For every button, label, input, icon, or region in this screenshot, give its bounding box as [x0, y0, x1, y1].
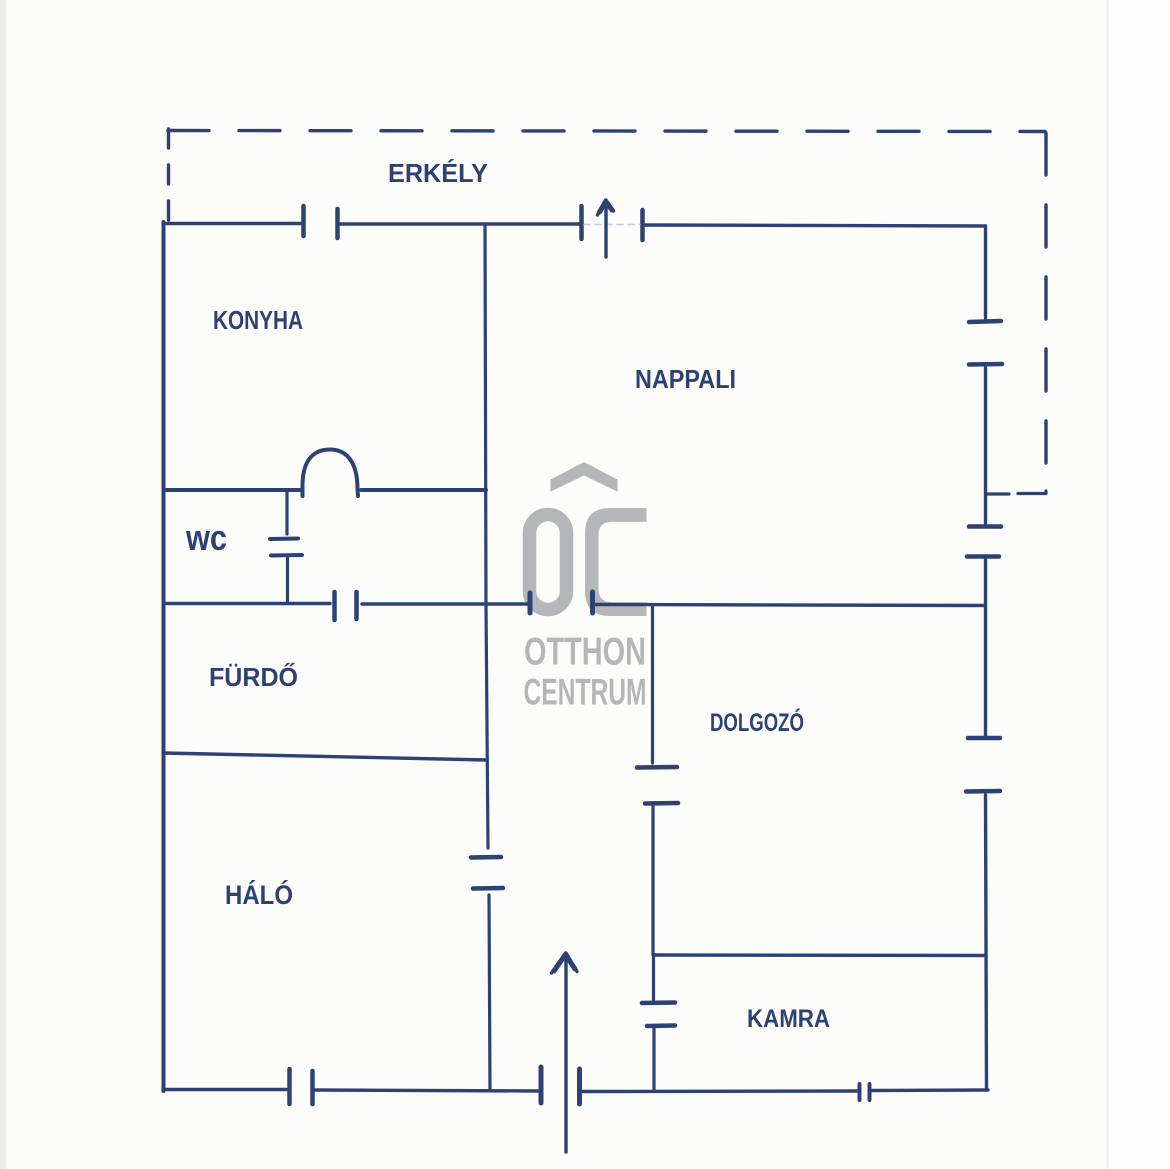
svg-text:KONYHA: KONYHA [213, 305, 303, 335]
svg-text:NAPPALI: NAPPALI [635, 364, 736, 394]
svg-text:CENTRUM: CENTRUM [524, 672, 647, 713]
svg-text:KAMRA: KAMRA [747, 1005, 830, 1033]
svg-text:HÁLÓ: HÁLÓ [225, 879, 293, 910]
svg-text:FÜRDŐ: FÜRDŐ [209, 662, 298, 692]
svg-text:ERKÉLY: ERKÉLY [388, 158, 488, 188]
svg-text:DOLGOZÓ: DOLGOZÓ [710, 707, 804, 737]
svg-text:OTTHON: OTTHON [524, 631, 646, 674]
svg-text:wc: wc [185, 517, 227, 558]
